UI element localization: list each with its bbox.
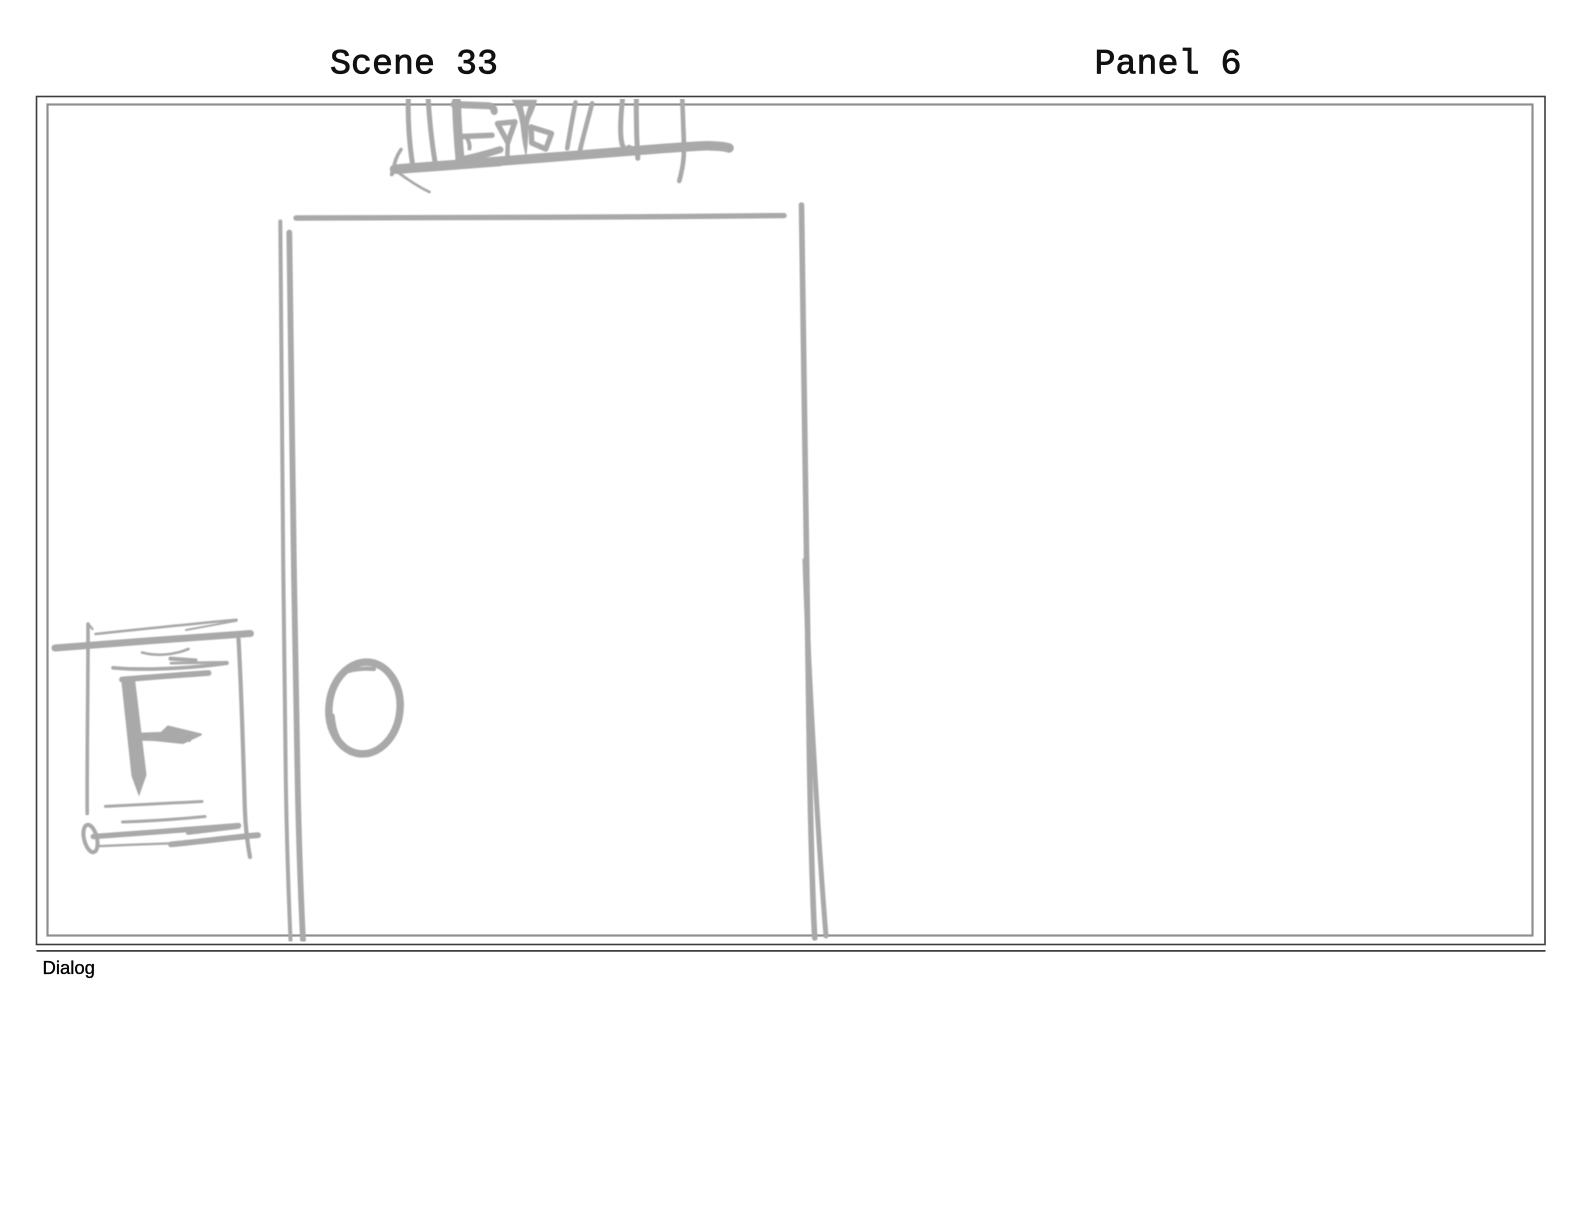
svg-text:Panel 6: Panel 6 xyxy=(1094,45,1241,85)
svg-text:Dialog: Dialog xyxy=(43,957,95,978)
svg-text:Scene 33: Scene 33 xyxy=(330,45,498,85)
